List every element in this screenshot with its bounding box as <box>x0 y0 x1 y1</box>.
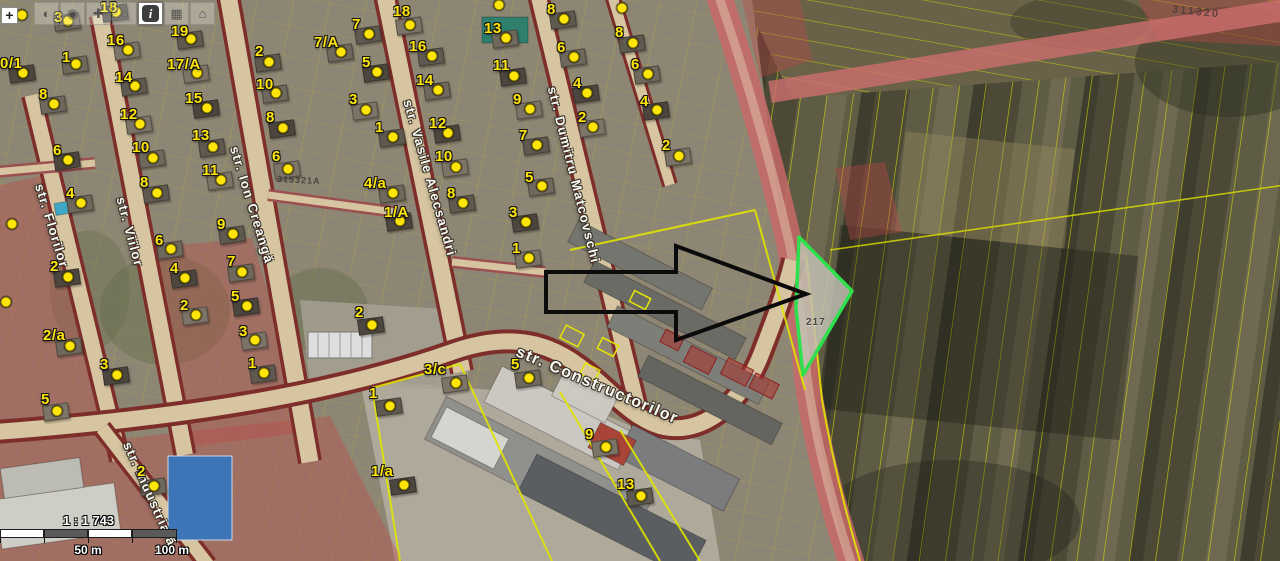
address-point[interactable] <box>336 47 347 58</box>
address-point[interactable] <box>216 175 227 186</box>
address-point[interactable] <box>559 14 570 25</box>
address-point[interactable] <box>388 188 399 199</box>
select-tool[interactable]: ◉ <box>60 2 85 25</box>
address-point[interactable] <box>166 244 177 255</box>
address-point[interactable] <box>148 153 159 164</box>
measure-tool-icon: ◌ <box>121 7 129 20</box>
scale-segment <box>44 529 88 538</box>
address-point[interactable] <box>617 3 628 14</box>
address-point[interactable] <box>152 188 163 199</box>
address-point[interactable] <box>509 71 520 82</box>
address-point[interactable] <box>63 272 74 283</box>
pan-tool[interactable]: ◐ <box>34 2 59 25</box>
map-canvas[interactable]: str. Florilorstr. Viilorstr. Ion Creangă… <box>0 0 1280 561</box>
address-point[interactable] <box>537 181 548 192</box>
select-tool-icon: ◉ <box>67 7 78 20</box>
address-point[interactable] <box>395 216 406 227</box>
scale-tick <box>0 538 1 543</box>
scale-segment <box>132 529 177 538</box>
scale-tick <box>132 538 133 543</box>
address-point[interactable] <box>628 38 639 49</box>
address-point[interactable] <box>501 33 512 44</box>
print-tool-icon: ⌂ <box>199 7 207 20</box>
measure-tool[interactable]: ◌ <box>112 2 137 25</box>
address-point[interactable] <box>451 162 462 173</box>
address-point[interactable] <box>588 122 599 133</box>
address-point[interactable] <box>283 164 294 175</box>
address-point[interactable] <box>180 273 191 284</box>
scale-tick <box>44 538 45 543</box>
scale-label-100m: 100 m <box>155 543 189 557</box>
address-point[interactable] <box>208 142 219 153</box>
address-point[interactable] <box>361 105 372 116</box>
address-point[interactable] <box>367 320 378 331</box>
address-point[interactable] <box>264 57 275 68</box>
address-point[interactable] <box>237 267 248 278</box>
address-point[interactable] <box>71 59 82 70</box>
address-point[interactable] <box>191 310 202 321</box>
address-point[interactable] <box>674 151 685 162</box>
satellite-map-base <box>0 0 1280 561</box>
address-point[interactable] <box>76 198 87 209</box>
address-point[interactable] <box>451 378 462 389</box>
legend-tool[interactable]: ▦ <box>164 2 189 25</box>
address-point[interactable] <box>49 99 60 110</box>
address-point[interactable] <box>652 105 663 116</box>
address-point[interactable] <box>385 401 396 412</box>
address-point[interactable] <box>364 29 375 40</box>
address-point[interactable] <box>494 0 505 11</box>
address-point[interactable] <box>65 341 76 352</box>
address-point[interactable] <box>112 370 123 381</box>
scale-segment <box>88 529 132 538</box>
address-point[interactable] <box>17 10 28 21</box>
address-point[interactable] <box>405 20 416 31</box>
address-point[interactable] <box>601 442 612 453</box>
address-point[interactable] <box>525 104 536 115</box>
address-point[interactable] <box>433 85 444 96</box>
info-tool-icon: i <box>142 5 159 22</box>
address-point[interactable] <box>524 253 535 264</box>
address-point[interactable] <box>271 88 282 99</box>
address-point[interactable] <box>135 119 146 130</box>
address-point[interactable] <box>242 301 253 312</box>
address-point[interactable] <box>149 481 160 492</box>
draw-tool-icon: ✚ <box>93 7 104 20</box>
pan-tool-icon: ◐ <box>43 7 51 20</box>
address-point[interactable] <box>458 198 469 209</box>
scale-ratio-text: 1 : 1 743 <box>0 513 177 528</box>
address-point[interactable] <box>521 217 532 228</box>
address-point[interactable] <box>399 480 410 491</box>
address-point[interactable] <box>1 297 12 308</box>
address-point[interactable] <box>18 68 29 79</box>
address-point[interactable] <box>569 52 580 63</box>
address-point[interactable] <box>643 69 654 80</box>
address-point[interactable] <box>202 103 213 114</box>
address-point[interactable] <box>186 34 197 45</box>
zoom-in-button[interactable]: + <box>1 7 18 24</box>
address-point[interactable] <box>259 368 270 379</box>
info-tool[interactable]: i <box>138 2 163 25</box>
address-point[interactable] <box>388 132 399 143</box>
address-point[interactable] <box>278 123 289 134</box>
address-point[interactable] <box>427 51 438 62</box>
print-tool[interactable]: ⌂ <box>190 2 215 25</box>
address-point[interactable] <box>524 373 535 384</box>
address-point[interactable] <box>372 67 383 78</box>
map-toolbar: ◐◉✚◌i▦⌂ <box>34 2 215 25</box>
address-point[interactable] <box>130 81 141 92</box>
address-point[interactable] <box>63 155 74 166</box>
address-point[interactable] <box>7 219 18 230</box>
scale-segment <box>0 529 44 538</box>
address-point[interactable] <box>636 491 647 502</box>
scale-label-50m: 50 m <box>74 543 101 557</box>
address-point[interactable] <box>443 128 454 139</box>
address-point[interactable] <box>52 406 63 417</box>
address-point[interactable] <box>532 140 543 151</box>
address-point[interactable] <box>123 45 134 56</box>
draw-tool[interactable]: ✚ <box>86 2 111 25</box>
legend-tool-icon: ▦ <box>170 7 182 20</box>
address-point[interactable] <box>228 229 239 240</box>
address-point[interactable] <box>582 88 593 99</box>
address-point[interactable] <box>250 335 261 346</box>
address-point[interactable] <box>192 68 203 79</box>
